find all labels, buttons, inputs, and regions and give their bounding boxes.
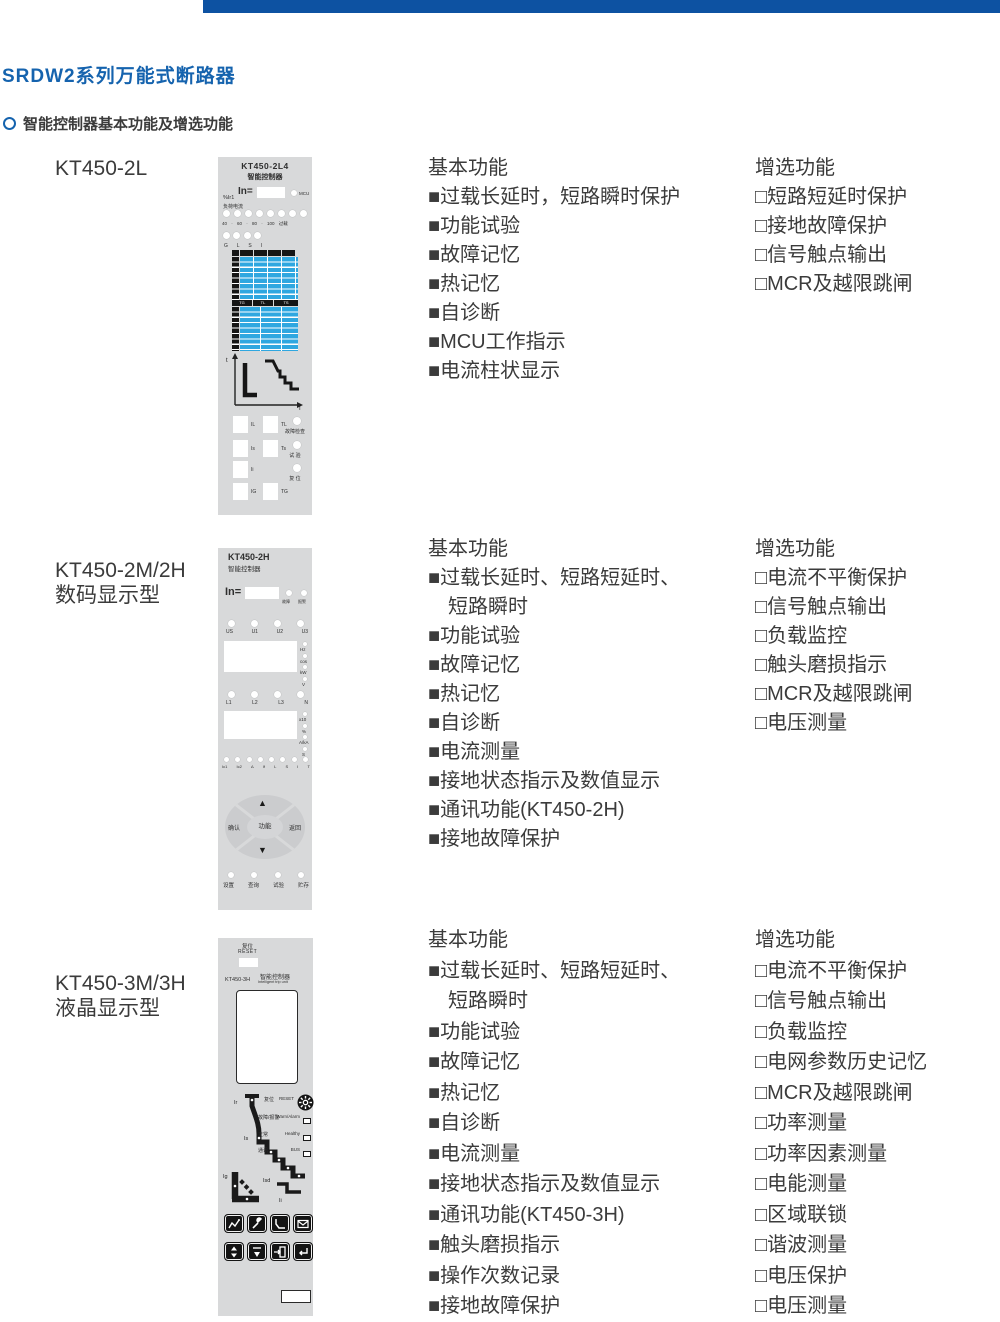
nav-function-button: 功能: [247, 815, 283, 839]
basic-item: ■过载长延时，短路瞬时保护: [428, 183, 680, 212]
setting-table-2: TG TL TS: [232, 300, 298, 351]
panel1-in-label: In=: [238, 186, 253, 197]
u-label: U1: [252, 629, 258, 635]
bottom-led-row: [228, 872, 304, 878]
curve-label-ii: Ii: [279, 1198, 282, 1204]
mcu-led: [291, 190, 297, 196]
panel2-subtitle: 智能控制器: [228, 563, 261, 573]
status-bus-label: 通讯 BUS: [258, 1147, 300, 1152]
nav-up-icon: ▲: [258, 798, 267, 808]
section-heading: 智能控制器基本功能及增选功能: [3, 113, 233, 134]
optional-functions-list-3: 增选功能 □电流不平衡保护 □信号触点输出 □负载监控 □电网参数历史记忆 □M…: [755, 925, 927, 1322]
panel-kt450-3h: 复位 RESET KT450-3H 智能控制器 Intelligent trip…: [218, 938, 313, 1316]
setting-label: TG: [281, 489, 288, 495]
unit-label: V: [302, 682, 305, 687]
table1-row-icons: [232, 257, 239, 300]
panel3-model: KT450-3H: [225, 977, 250, 983]
led: [269, 757, 274, 762]
exit-button: [270, 1242, 290, 1261]
mail-icon: [296, 1217, 310, 1231]
status-led-labels: Ic1 Ic2 Δ If L S I T: [222, 764, 310, 769]
table1-header-cell: [282, 250, 295, 256]
led: [303, 757, 308, 762]
optional-item: □MCR及越限跳闸: [755, 270, 913, 299]
basic-item: ■热记忆: [428, 270, 680, 299]
basic-functions-list-3: 基本功能 ■过载长延时、短路短延时、 短路瞬时 ■功能试验 ■故障记忆 ■热记忆…: [428, 925, 680, 1322]
basic-item: ■电流柱状显示: [428, 357, 680, 386]
fault-led: [286, 590, 292, 596]
mode-label: 试验: [273, 881, 284, 889]
wrench-button: [247, 1214, 267, 1233]
led: [280, 757, 285, 762]
zone-label: L: [237, 243, 240, 249]
led: [223, 232, 230, 239]
setting-window: [233, 440, 248, 457]
optional-functions-list-1: 增选功能 □短路短延时保护 □接地故障保护 □信号触点输出 □MCR及越限跳闸: [755, 154, 913, 299]
bottom-led-labels: 设置 查询 试验 贮存: [223, 881, 309, 889]
basic-item: ■故障记忆: [428, 651, 680, 680]
panel1-mcu-label: MCU: [299, 191, 309, 196]
model-label-kt450-2l: KT450-2L: [55, 156, 147, 181]
panel2-title: KT450-2H: [228, 552, 270, 562]
list-title: 基本功能: [428, 154, 680, 183]
optional-item: □电压测量: [755, 709, 913, 738]
status-label: Ic1: [222, 764, 227, 769]
led: [224, 757, 229, 762]
setting-window: [263, 416, 278, 433]
down-icon: [250, 1245, 264, 1259]
status-label: Δ: [251, 764, 254, 769]
optional-item: □短路短延时保护: [755, 183, 913, 212]
led: [223, 210, 230, 217]
reset-led: [293, 464, 301, 472]
voltage-led-row: [228, 620, 304, 627]
status-label: Ic2: [236, 764, 241, 769]
optional-item: □功率因素测量: [755, 1139, 927, 1170]
mode-label: 查询: [248, 881, 259, 889]
exit-icon: [273, 1245, 287, 1259]
table1-header-cell: [268, 250, 281, 256]
led: [303, 747, 307, 751]
model-label-kt450-3m3h: KT450-3M/3H 液晶显示型: [55, 971, 186, 1021]
curve-label-isd: Isd: [263, 1178, 270, 1184]
setting-window: [263, 440, 278, 457]
optional-item: □电压保护: [755, 1261, 927, 1292]
curve-label-ig: Ig: [223, 1174, 228, 1180]
led: [228, 872, 234, 878]
table2-header-cell: TG: [232, 300, 252, 306]
table2-header-cell: TS: [274, 300, 298, 306]
mode-label: 设置: [223, 881, 234, 889]
basic-item: ■自诊断: [428, 709, 680, 738]
wrench-icon: [250, 1217, 264, 1231]
panel1-load-label: 负荷电流: [223, 203, 243, 210]
led: [228, 620, 235, 627]
digital-display-1: [224, 641, 297, 672]
model-line: 数码显示型: [55, 583, 186, 608]
basic-item: ■功能试验: [428, 212, 680, 241]
enter-icon: [296, 1245, 310, 1259]
status-cn: 故障/报警: [258, 1114, 279, 1121]
table2-header-cell: TL: [253, 300, 273, 306]
status-healthy-label: 正常 Healthy: [258, 1131, 300, 1136]
unit-label: %: [302, 729, 306, 734]
led: [303, 735, 307, 739]
l-label: L3: [278, 700, 284, 706]
basic-item: ■接地故障保护: [428, 1291, 680, 1322]
reset-gear-icon: [297, 1094, 314, 1111]
basic-item: ■电流测量: [428, 738, 680, 767]
panel-kt450-2h: KT450-2H 智能控制器 In= 故障 报警 US U1 U2 U3 Hz …: [218, 548, 312, 910]
reset-label: 复 位: [280, 475, 310, 482]
panel2-in-label: In=: [225, 586, 241, 598]
basic-item: ■触头磨损指示: [428, 1230, 680, 1261]
setting-table-1: [232, 250, 298, 300]
setting-window: [233, 461, 248, 478]
setting-label: IG: [251, 489, 256, 495]
list-title: 增选功能: [755, 154, 913, 183]
warn-alarm-led: [303, 1118, 311, 1124]
zone-label: S: [248, 243, 251, 249]
led: [303, 724, 307, 728]
optional-item: □信号触点输出: [755, 593, 913, 622]
status-label: T: [308, 764, 310, 769]
led: [234, 210, 241, 217]
basic-item: ■热记忆: [428, 1078, 680, 1109]
unit-label: kW: [300, 670, 307, 675]
optional-item: □电流不平衡保护: [755, 564, 913, 593]
panel3-subtitle-en: Intelligent trip unit: [258, 980, 288, 984]
setting-window: [263, 483, 278, 500]
basic-item: ■操作次数记录: [428, 1261, 680, 1292]
optional-item: □谐波测量: [755, 1230, 927, 1261]
led: [303, 677, 307, 681]
table2-body: [240, 307, 298, 351]
led: [303, 665, 307, 669]
optional-item: □区域联锁: [755, 1200, 927, 1231]
table1-header: [232, 250, 298, 256]
optional-item: □负载监控: [755, 1017, 927, 1048]
nav-down-icon: ▼: [258, 845, 267, 855]
panel1-pct-label: %Ir1: [223, 195, 234, 201]
axis-t-label: t: [226, 358, 228, 364]
led: [256, 210, 263, 217]
led: [233, 232, 240, 239]
basic-item: ■过载长延时、短路短延时、: [428, 564, 680, 593]
phase-led-row: [228, 691, 304, 698]
digital-display-2: [224, 711, 297, 739]
u-label: U3: [302, 629, 308, 635]
mode-label: 贮存: [298, 881, 309, 889]
model-line: 液晶显示型: [55, 996, 186, 1021]
basic-item: 短路瞬时: [428, 986, 680, 1017]
optional-item: □功率测量: [755, 1108, 927, 1139]
led: [292, 757, 297, 762]
status-led-row: [224, 757, 308, 762]
led: [258, 757, 263, 762]
setting-label: Is: [251, 446, 255, 452]
optional-functions-list-2: 增选功能 □电流不平衡保护 □信号触点输出 □负载监控 □触头磨损指示 □MCR…: [755, 535, 913, 738]
up-down-icon: [227, 1245, 241, 1259]
led: [235, 757, 240, 762]
page-title: SRDW2系列万能式断路器: [2, 61, 236, 88]
led: [247, 757, 252, 762]
meter-button: [224, 1214, 244, 1233]
curve-label-is: Is: [244, 1136, 249, 1142]
setting-window: [233, 483, 248, 500]
optional-item: □负载监控: [755, 622, 913, 651]
fault-check-label: 故障检查: [280, 428, 310, 435]
basic-item: ■接地故障保护: [428, 825, 680, 854]
alarm-led-label: 报警: [298, 599, 306, 605]
down-button: [247, 1242, 267, 1261]
zone-led-row: [223, 232, 261, 239]
meter-icon: [227, 1217, 241, 1231]
healthy-led: [303, 1135, 311, 1141]
led: [228, 691, 235, 698]
nav-pad: ▲ ▼ 确认 返回 功能: [225, 795, 305, 859]
u-label: U2: [277, 629, 283, 635]
led: [251, 691, 258, 698]
panel1-title: KT450-2L4: [218, 161, 312, 171]
status-cn: 复位: [264, 1096, 274, 1103]
basic-item: ■功能试验: [428, 622, 680, 651]
curve-icon: [273, 1217, 287, 1231]
optional-item: □接地故障保护: [755, 212, 913, 241]
basic-item: 短路瞬时: [428, 593, 680, 622]
led: [275, 872, 281, 878]
basic-item: ■热记忆: [428, 680, 680, 709]
panel1-scale-label: 40 · 60 · 80 · 100 过载: [222, 221, 310, 227]
test-led: [293, 441, 301, 449]
list-title: 增选功能: [755, 925, 927, 956]
basic-item: ■通讯功能(KT450-3H): [428, 1200, 680, 1231]
model-line: KT450-2M/2H: [55, 558, 186, 583]
table1-header-cell: [232, 250, 239, 256]
basic-functions-list-1: 基本功能 ■过载长延时，短路瞬时保护 ■功能试验 ■故障记忆 ■热记忆 ■自诊断…: [428, 154, 680, 386]
basic-item: ■自诊断: [428, 1108, 680, 1139]
lcd-screen: [236, 990, 298, 1084]
basic-item: ■电流测量: [428, 1139, 680, 1170]
unit-label: Hz: [300, 647, 306, 652]
led: [303, 642, 307, 646]
nav-confirm-button: 确认: [228, 823, 240, 832]
led: [274, 620, 281, 627]
led: [297, 620, 304, 627]
led: [303, 654, 307, 658]
curve-label-ir: Ir: [234, 1100, 238, 1106]
led: [267, 210, 274, 217]
led: [303, 712, 307, 716]
status-label: I: [297, 764, 298, 769]
bus-led: [303, 1151, 311, 1157]
basic-item: ■故障记忆: [428, 1047, 680, 1078]
table1-header-cell: [240, 250, 253, 256]
basic-item: ■MCU工作指示: [428, 328, 680, 357]
panel-kt450-2l4: KT450-2L4 智能控制器 %Ir1 In= MCU 负荷电流 40 · 6…: [218, 157, 312, 515]
panel3-reset-en: RESET: [238, 949, 257, 955]
basic-item: ■接地状态指示及数值显示: [428, 1169, 680, 1200]
nameplate-window: [281, 1290, 311, 1303]
table1-body: [240, 257, 298, 300]
table2-header: TG TL TS: [232, 300, 298, 306]
fault-led-label: 故障: [282, 599, 290, 605]
optional-item: □信号触点输出: [755, 241, 913, 270]
test-label: 试 验: [280, 452, 310, 459]
zone-label: G: [224, 243, 228, 249]
led: [298, 872, 304, 878]
status-cn: 通讯: [258, 1147, 268, 1154]
table1-header-cell: [254, 250, 267, 256]
led: [254, 232, 261, 239]
setting-label: IL: [251, 422, 255, 428]
led: [251, 872, 257, 878]
status-reset-label: 复位 RESET: [264, 1096, 294, 1101]
table2-row-icons: [232, 307, 239, 351]
voltage-led-labels: US U1 U2 U3: [226, 629, 308, 635]
l-label: N: [304, 700, 308, 706]
optional-item: □MCR及越限跳闸: [755, 680, 913, 709]
optional-item: □电网参数历史记忆: [755, 1047, 927, 1078]
reset-button-window: [239, 958, 258, 967]
model-line: KT450-2L: [55, 156, 147, 181]
trip-curve-chart: t I: [223, 349, 307, 411]
list-title: 基本功能: [428, 925, 680, 956]
unit-label: S: [302, 752, 305, 757]
l-label: L2: [252, 700, 258, 706]
status-label: S: [285, 764, 288, 769]
basic-item: ■故障记忆: [428, 241, 680, 270]
list-title: 增选功能: [755, 535, 913, 564]
l-label: L1: [226, 700, 232, 706]
status-cn: 正常: [258, 1131, 268, 1138]
u-label: US: [226, 629, 233, 635]
phase-led-labels: L1 L2 L3 N: [226, 700, 308, 706]
axis-i-label: I: [299, 406, 301, 411]
optional-item: □电流不平衡保护: [755, 956, 927, 987]
fault-check-led: [293, 417, 301, 425]
load-led-row: [223, 210, 307, 217]
setting-label: Ii: [251, 467, 254, 473]
led: [251, 620, 258, 627]
led: [278, 210, 285, 217]
led: [300, 210, 307, 217]
top-accent-bar: [203, 0, 1000, 13]
panel1-subtitle: 智能控制器: [218, 172, 312, 182]
list-title: 基本功能: [428, 535, 680, 564]
optional-item: □MCR及越限跳闸: [755, 1078, 927, 1109]
led: [244, 232, 251, 239]
led: [297, 691, 304, 698]
unit-label: A/kA: [299, 740, 309, 745]
alarm-led: [301, 590, 307, 596]
led: [245, 210, 252, 217]
panel2-in-window: [245, 587, 279, 599]
basic-functions-list-2: 基本功能 ■过载长延时、短路短延时、 短路瞬时 ■功能试验 ■故障记忆 ■热记忆…: [428, 535, 680, 854]
basic-item: ■自诊断: [428, 299, 680, 328]
led: [274, 691, 281, 698]
zone-label: I: [261, 243, 262, 249]
curve-button: [270, 1214, 290, 1233]
optional-item: □电能测量: [755, 1169, 927, 1200]
enter-button: [293, 1242, 313, 1261]
unit-label: x10: [299, 717, 306, 722]
status-label: L: [274, 764, 276, 769]
basic-item: ■过载长延时、短路短延时、: [428, 956, 680, 987]
status-warn-label: 故障/报警 Warn/Alarm: [258, 1114, 300, 1119]
basic-item: ■通讯功能(KT450-2H): [428, 796, 680, 825]
panel1-in-window: [257, 187, 285, 198]
model-line: KT450-3M/3H: [55, 971, 186, 996]
optional-item: □信号触点输出: [755, 986, 927, 1017]
model-label-kt450-2m2h: KT450-2M/2H 数码显示型: [55, 558, 186, 608]
zone-led-labels: G L S I: [224, 243, 262, 249]
basic-item: ■接地状态指示及数值显示: [428, 767, 680, 796]
status-label: If: [263, 764, 265, 769]
section-heading-text: 智能控制器基本功能及增选功能: [23, 116, 233, 133]
up-down-button: [224, 1242, 244, 1261]
optional-item: □电压测量: [755, 1291, 927, 1322]
unit-label: cos: [300, 659, 307, 664]
basic-item: ■功能试验: [428, 1017, 680, 1048]
mail-button: [293, 1214, 313, 1233]
circle-bullet-icon: [3, 117, 16, 130]
setting-window: [233, 416, 248, 433]
optional-item: □触头磨损指示: [755, 651, 913, 680]
led: [289, 210, 296, 217]
nav-return-button: 返回: [289, 823, 301, 832]
